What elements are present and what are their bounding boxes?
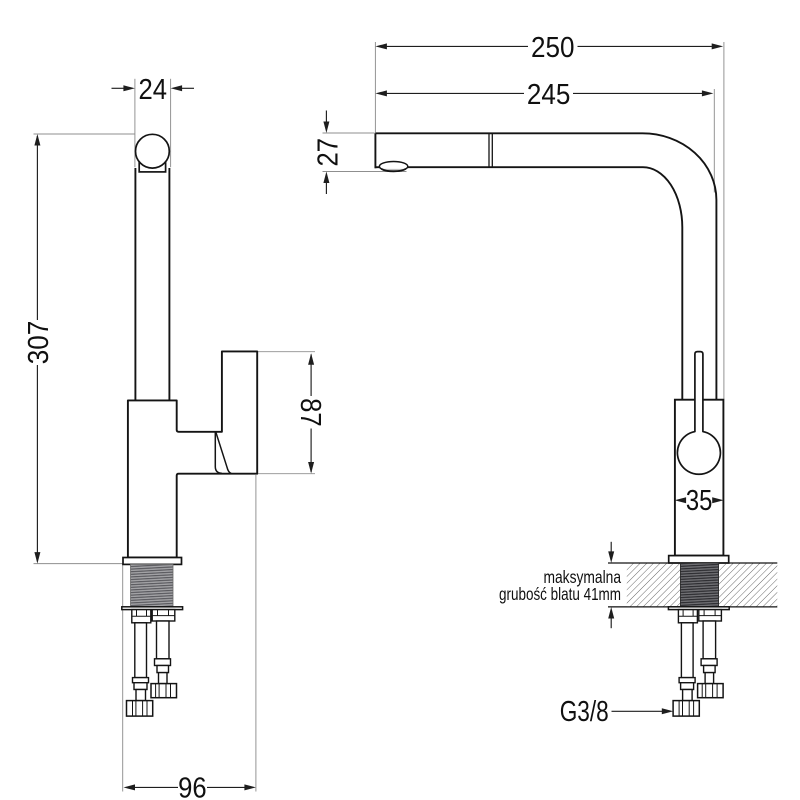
svg-text:307: 307: [23, 321, 55, 365]
svg-text:35: 35: [686, 485, 713, 517]
svg-text:grubość blatu 41mm: grubość blatu 41mm: [499, 584, 621, 604]
svg-text:245: 245: [527, 79, 571, 111]
svg-text:96: 96: [178, 773, 207, 800]
svg-text:24: 24: [139, 74, 168, 106]
svg-text:G3/8: G3/8: [560, 696, 609, 728]
svg-text:27: 27: [312, 138, 344, 167]
svg-text:87: 87: [294, 398, 326, 427]
svg-text:250: 250: [531, 32, 575, 64]
